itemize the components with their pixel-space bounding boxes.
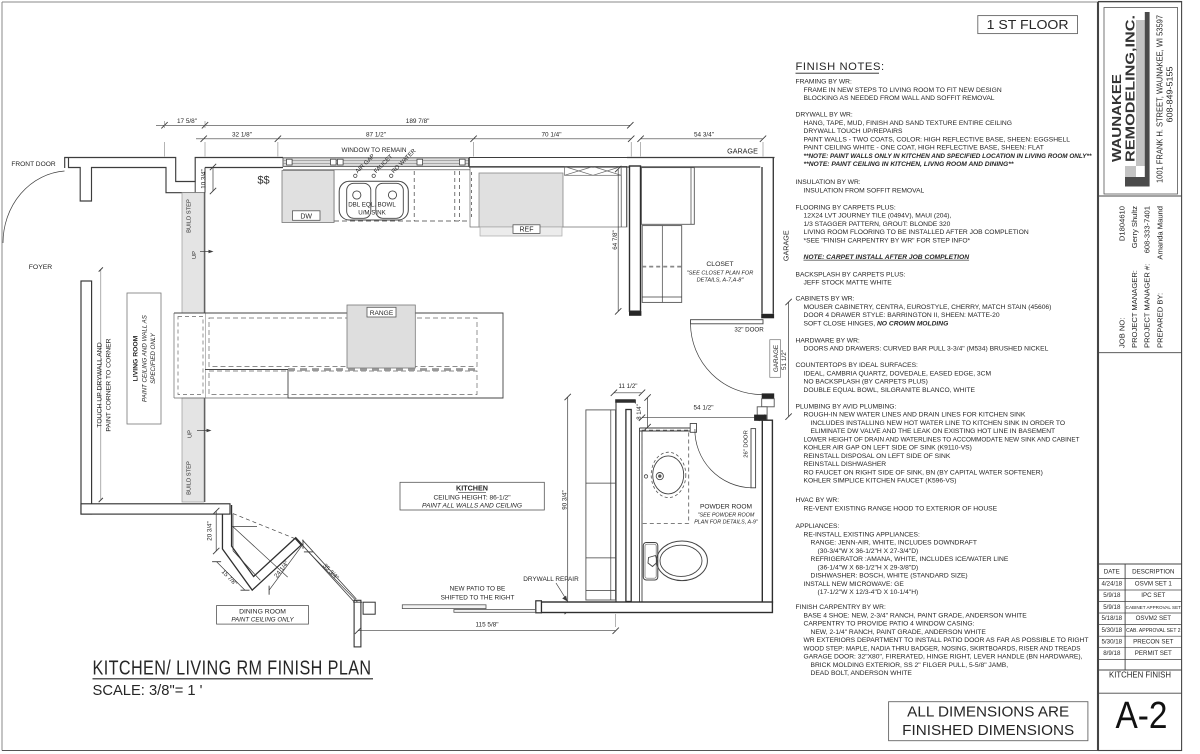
svg-text:HVAC BY WR:: HVAC BY WR: [796,497,840,504]
svg-text:87 1/2": 87 1/2" [366,131,386,138]
svg-text:INSULATION BY WR:: INSULATION BY WR: [796,179,861,186]
svg-text:CABINETS BY WR:: CABINETS BY WR: [796,296,855,303]
svg-text:FINISH NOTES:: FINISH NOTES: [796,61,885,73]
svg-text:POWDER ROOM: POWDER ROOM [700,504,752,511]
svg-text:DRYWALL REPAIR: DRYWALL REPAIR [523,576,579,583]
svg-text:U/M SINK: U/M SINK [358,210,386,217]
svg-text:FRAME IN NEW STEPS TO LIVING R: FRAME IN NEW STEPS TO LIVING ROOM TO FIT… [804,87,1002,94]
svg-text:WINDOW TO REMAIN: WINDOW TO REMAIN [341,147,406,154]
svg-text:PAINT CORNER TO CORNER: PAINT CORNER TO CORNER [106,338,113,431]
svg-text:LOWER HEIGHT OF DRAIN AND WATE: LOWER HEIGHT OF DRAIN AND WATERLINES TO … [804,436,1080,443]
svg-text:"SEE CLOSET PLAN FOR: "SEE CLOSET PLAN FOR [687,271,754,277]
svg-text:70 1/4": 70 1/4" [541,131,561,138]
svg-text:HANG, TAPE, MUD, FINISH AND SA: HANG, TAPE, MUD, FINISH AND SAND TEXTURE… [804,120,1012,127]
svg-text:FLOORING BY CARPETS PLUS:: FLOORING BY CARPETS PLUS: [796,204,896,211]
svg-text:JOB NO:: JOB NO: [1118,318,1127,348]
svg-text:35 3/4": 35 3/4" [321,563,340,582]
svg-text:REINSTALL DISHWASHER: REINSTALL DISHWASHER [804,461,887,468]
svg-text:RANGE: RANGE [370,310,394,317]
svg-text:FOYER: FOYER [29,264,53,271]
svg-text:90 3/4": 90 3/4" [561,490,568,509]
svg-text:GARAGE: GARAGE [727,147,758,156]
svg-text:REF: REF [520,227,534,234]
svg-text:ROUGH-IN NEW WATER LINES AND D: ROUGH-IN NEW WATER LINES AND DRAIN LINES… [804,412,1026,419]
svg-text:DW: DW [300,213,312,220]
svg-text:54 1/2": 54 1/2" [693,405,713,412]
svg-text:PAINT CEILING ONLY: PAINT CEILING ONLY [231,617,294,624]
svg-text:BLOCKING AS NEEDED FROM WALL A: BLOCKING AS NEEDED FROM WALL AND SOFFIT … [804,95,995,102]
svg-text:LIVING ROOM: LIVING ROOM [133,335,140,381]
svg-text:NEW PATIO TO BE: NEW PATIO TO BE [450,586,506,593]
svg-text:PAINT ALL WALLS AND CEILING: PAINT ALL WALLS AND CEILING [422,503,522,510]
svg-text:REFRIGERATOR :AMANA, WHITE, IN: REFRIGERATOR :AMANA, WHITE, INCLUDES ICE… [811,556,1009,563]
svg-text:PLUMBING BY AVID PLUMBING:: PLUMBING BY AVID PLUMBING: [796,403,897,410]
svg-text:CLOSET: CLOSET [706,261,733,268]
svg-text:Gerry Shultz: Gerry Shultz [1130,206,1139,248]
svg-text:RO FAUCET ON RIGHT SIDE OF SIN: RO FAUCET ON RIGHT SIDE OF SINK, BN (BY … [804,469,1043,476]
svg-text:TOUCH UP DRYWALL AND: TOUCH UP DRYWALL AND [97,342,104,427]
svg-text:(36-1/4"W X 68-1/2"H X 29-3/8": (36-1/4"W X 68-1/2"H X 29-3/8"D) [818,564,919,571]
svg-text:IPC SET: IPC SET [1141,592,1165,599]
svg-text:BRICK MOLDING EXTERIOR, SS 2": BRICK MOLDING EXTERIOR, SS 2" FILGER PUL… [811,662,1009,669]
svg-text:(30-3/4"W X 36-1/2"H X 27-3/4": (30-3/4"W X 36-1/2"H X 27-3/4"D) [818,548,919,555]
svg-text:PERMIT SET: PERMIT SET [1135,650,1172,657]
svg-text:NEW, 2-1/4" RANCH, PAINT GRADE: NEW, 2-1/4" RANCH, PAINT GRADE, ANDERSON… [811,629,987,636]
svg-text:32" DOOR: 32" DOOR [734,327,764,334]
svg-text:PLAN FOR DETAILS, A-9": PLAN FOR DETAILS, A-9" [694,520,759,526]
svg-text:UP: UP [192,251,198,259]
svg-text:APPLIANCES:: APPLIANCES: [796,523,840,530]
svg-text:1/3 STAGGER PATTERN, GROUT: BL: 1/3 STAGGER PATTERN, GROUT: BLONDE 320 [804,221,951,228]
svg-text:608-333-7401: 608-333-7401 [1143,206,1152,253]
svg-text:KOHLER SIMPLICE KITCHEN FAUCET: KOHLER SIMPLICE KITCHEN FAUCET (K596-VS) [804,478,957,485]
svg-text:KITCHEN: KITCHEN [456,484,488,493]
svg-text:32 1/8": 32 1/8" [232,131,252,138]
svg-text:INCLUDES INSTALLING NEW HOT WA: INCLUDES INSTALLING NEW HOT WATER LINE T… [811,420,1066,427]
svg-text:5/30/18: 5/30/18 [1101,638,1122,645]
svg-text:PAINT WALLS - TWO COATS, COLO: PAINT WALLS - TWO COATS, COLOR: HIGH REF… [804,136,1071,143]
svg-text:64 7/8": 64 7/8" [612,230,619,249]
svg-text:JEFF STOCK MATTE WHITE: JEFF STOCK MATTE WHITE [804,280,893,287]
svg-text:DOOR 4 DRAWER STYLE: BARRINGTO: DOOR 4 DRAWER STYLE: BARRINGTON II, SHEE… [804,312,1000,319]
svg-text:PAINT CEILING AND WALL AS: PAINT CEILING AND WALL AS [142,314,149,402]
svg-text:**NOTE: PAINT CEILING IN KITCH: **NOTE: PAINT CEILING IN KITCHEN, LIVNG … [804,161,1014,168]
svg-text:51 1/2": 51 1/2" [781,350,788,370]
svg-text:DATE: DATE [1104,569,1120,576]
svg-text:RANGE: JENN-AIR, WHITE, INCLUD: RANGE: JENN-AIR, WHITE, INCLUDES DOWNDRA… [811,540,977,547]
svg-text:5/30/18: 5/30/18 [1101,627,1122,634]
svg-text:*SEE "FINISH CARPENTRY BY WR": *SEE "FINISH CARPENTRY BY WR" FOR STEP I… [804,237,971,244]
svg-text:Amanda Maund: Amanda Maund [1155,206,1164,260]
svg-text:DOUBLE EQUAL BOWL, SILGRANITE: DOUBLE EQUAL BOWL, SILGRANITE BLANCO, WH… [804,387,976,394]
svg-text:INSULATION FROM SOFFIT REMOVAL: INSULATION FROM SOFFIT REMOVAL [804,187,925,194]
svg-text:BASE 4 SHOE: NEW, 2-3/4" RANCH: BASE 4 SHOE: NEW, 2-3/4" RANCH, PAINT GR… [804,612,1028,619]
svg-text:DRYWALL BY WR:: DRYWALL BY WR: [796,112,853,119]
svg-text:PRECON SET: PRECON SET [1133,638,1173,645]
svg-text:BACKSPLASH BY CARPETS PLUS:: BACKSPLASH BY CARPETS PLUS: [796,271,906,278]
svg-text:RE-INSTALL EXISTING APPLIANCES: RE-INSTALL EXISTING APPLIANCES: [804,531,920,538]
svg-text:OSVM2 SET: OSVM2 SET [1136,615,1172,622]
svg-text:KITCHEN/ LIVING RM FINISH PLAN: KITCHEN/ LIVING RM FINISH PLAN [93,658,372,680]
svg-text:GARAGE: GARAGE [782,230,791,261]
svg-text:BUILD STEP: BUILD STEP [187,461,193,495]
svg-text:PAINT CEILING WHITE - ONE COAT: PAINT CEILING WHITE - ONE COAT, HIGH REF… [804,145,1044,152]
svg-text:1001 FRANK H. STREET, WAUNAKEE: 1001 FRANK H. STREET, WAUNAKEE, WI 53597 [1156,15,1165,183]
svg-text:CABINET APPROVAL SET: CABINET APPROVAL SET [1126,605,1182,610]
svg-text:REMODELING,INC.: REMODELING,INC. [1123,15,1138,162]
svg-text:UP: UP [188,430,194,438]
svg-text:KOHLER AIR GAP ON LEFT SIDE OF: KOHLER AIR GAP ON LEFT SIDE OF SINK (K91… [804,445,972,452]
svg-text:SHIFTED TO THE RIGHT: SHIFTED TO THE RIGHT [441,595,515,602]
svg-text:PROJECT MANAGER #:: PROJECT MANAGER #: [1143,264,1152,348]
svg-text:WR EXTERIORS DEPARTMENT TO INS: WR EXTERIORS DEPARTMENT TO INSTALL PATIO… [804,637,1089,644]
svg-text:DISHWASHER: BOSCH, WHITE (STAN: DISHWASHER: BOSCH, WHITE (STANDARD SIZE) [811,573,968,580]
svg-text:ALL DIMENSIONS ARE: ALL DIMENSIONS ARE [907,705,1069,721]
svg-text:A-2: A-2 [1116,695,1168,737]
svg-text:GARAGE DOOR: 32"X80", FIRERATE: GARAGE DOOR: 32"X80", FIRERATED, HINGE R… [804,654,1083,661]
svg-text:1 ST FLOOR: 1 ST FLOOR [987,17,1069,32]
svg-text:608-849-5155: 608-849-5155 [1166,66,1175,122]
svg-text:FINISHED DIMENSIONS: FINISHED DIMENSIONS [902,723,1074,739]
svg-text:115 5/8": 115 5/8" [475,622,498,629]
svg-text:DEAD BOLT, ANDERSON WHITE: DEAD BOLT, ANDERSON WHITE [811,670,913,677]
svg-text:DESCRIPTION: DESCRIPTION [1132,569,1174,576]
svg-text:12X24 LVT JOURNEY TILE (0494V): 12X24 LVT JOURNEY TILE (0494V), MAUI (20… [804,213,952,220]
svg-text:DRYWALL TOUCH UP/REPAIRS: DRYWALL TOUCH UP/REPAIRS [804,128,904,135]
svg-text:LIVING ROOM FLOORING TO BE INS: LIVING ROOM FLOORING TO BE INSTALLED AFT… [804,229,1029,236]
svg-text:$$: $$ [257,175,269,187]
svg-text:PREPARED BY:: PREPARED BY: [1155,293,1164,348]
svg-text:5/9/18: 5/9/18 [1103,604,1121,611]
svg-text:FRONT DOOR: FRONT DOOR [11,161,55,168]
svg-text:CAB. APPROVAL SET 2: CAB. APPROVAL SET 2 [1126,628,1181,634]
svg-text:20 3/4": 20 3/4" [207,521,214,540]
svg-text:REINSTALL DISPOSAL ON LEFT SID: REINSTALL DISPOSAL ON LEFT SIDE OF SINK [804,453,951,460]
svg-text:DBL EQL. BOWL: DBL EQL. BOWL [348,202,396,209]
svg-text:5/18/18: 5/18/18 [1101,615,1122,622]
svg-text:SOFT CLOSE HINGES, NO CROWN MO: SOFT CLOSE HINGES, NO CROWN MOLDING [804,320,949,327]
svg-text:11 1/2": 11 1/2" [619,383,638,390]
svg-text:CEILING HEIGHT: 86-1/2": CEILING HEIGHT: 86-1/2" [433,495,511,502]
svg-text:BUILD STEP: BUILD STEP [187,199,193,233]
svg-text:KITCHEN FINISH: KITCHEN FINISH [1109,671,1171,680]
svg-text:GARAGE: GARAGE [773,345,780,372]
svg-text:17 5/8": 17 5/8" [177,118,197,125]
svg-text:D1804610: D1804610 [1118,206,1127,241]
svg-text:54 3/4": 54 3/4" [694,131,714,138]
svg-text:DOORS AND DRAWERS: CURVED BAR: DOORS AND DRAWERS: CURVED BAR PULL 3-3/4… [804,346,1049,353]
svg-text:IDEAL, CAMBRIA QUARTZ, DOVEDAL: IDEAL, CAMBRIA QUARTZ, DOVEDALE, EASED E… [804,370,992,377]
svg-text:SCALE: 3/8"= 1 ': SCALE: 3/8"= 1 ' [93,682,203,699]
svg-text:CARPENTRY TO PROVIDE PATIO 4 W: CARPENTRY TO PROVIDE PATIO 4 WINDOW CASI… [804,621,975,628]
svg-text:RE-VENT EXISTING RANGE HOOD TO: RE-VENT EXISTING RANGE HOOD TO EXTERIOR … [804,505,998,512]
svg-text:"SEE POWDER ROOM: "SEE POWDER ROOM [698,513,755,519]
svg-text:DETAILS, A-7,A-8": DETAILS, A-7,A-8" [697,278,745,284]
svg-text:15 7/8": 15 7/8" [220,569,239,588]
svg-text:**NOTE: PAINT WALLS ONLY IN KI: **NOTE: PAINT WALLS ONLY IN KITCHEN AND … [804,153,1092,160]
svg-text:OSVM SET 1: OSVM SET 1 [1135,581,1173,588]
svg-text:SPECIFIED ONLY: SPECIFIED ONLY [150,332,157,384]
svg-text:WOOD STEP: MAPLE, NADIA THRU B: WOOD STEP: MAPLE, NADIA THRU BADGER, NOS… [804,645,1081,652]
svg-text:10 3/4": 10 3/4" [201,169,208,188]
svg-text:PROJECT MANAGER:: PROJECT MANAGER: [1130,270,1139,348]
svg-text:189 7/8": 189 7/8" [406,118,430,125]
svg-text:(17-1/2"W X 12/3-4"D X 10-1/4": (17-1/2"W X 12/3-4"D X 10-1/4"H) [818,589,919,596]
svg-text:5/9/18: 5/9/18 [1103,592,1121,599]
svg-text:4/24/18: 4/24/18 [1101,581,1122,588]
svg-text:NO BACKSPLASH (BY CARPETS PLUS: NO BACKSPLASH (BY CARPETS PLUS) [804,379,928,386]
svg-text:COUNTERTOPS BY IDEAL SURFACES:: COUNTERTOPS BY IDEAL SURFACES: [796,362,919,369]
svg-text:8/9/18: 8/9/18 [1103,650,1121,657]
svg-text:HARDWARE BY WR:: HARDWARE BY WR: [796,337,860,344]
svg-text:FINISH CARPENTRY BY WR:: FINISH CARPENTRY BY WR: [796,604,886,611]
svg-text:ELIMINATE DW VALVE AND THE LEA: ELIMINATE DW VALVE AND THE LEAK ON EXIST… [811,428,1056,435]
svg-text:INSTALL NEW MICROWAVE: GE: INSTALL NEW MICROWAVE: GE [804,581,905,588]
svg-text:DINING ROOM: DINING ROOM [239,609,286,616]
svg-text:NOTE: CARPET INSTALL AFTER JOB: NOTE: CARPET INSTALL AFTER JOB COMPLETIO… [804,254,970,261]
svg-text:MOUSER CABINETRY, CENTRA, EURO: MOUSER CABINETRY, CENTRA, EUROSTYLE, CHE… [804,304,1052,311]
svg-text:FRAMING BY WR:: FRAMING BY WR: [796,79,852,86]
svg-text:26" DOOR: 26" DOOR [744,430,750,458]
